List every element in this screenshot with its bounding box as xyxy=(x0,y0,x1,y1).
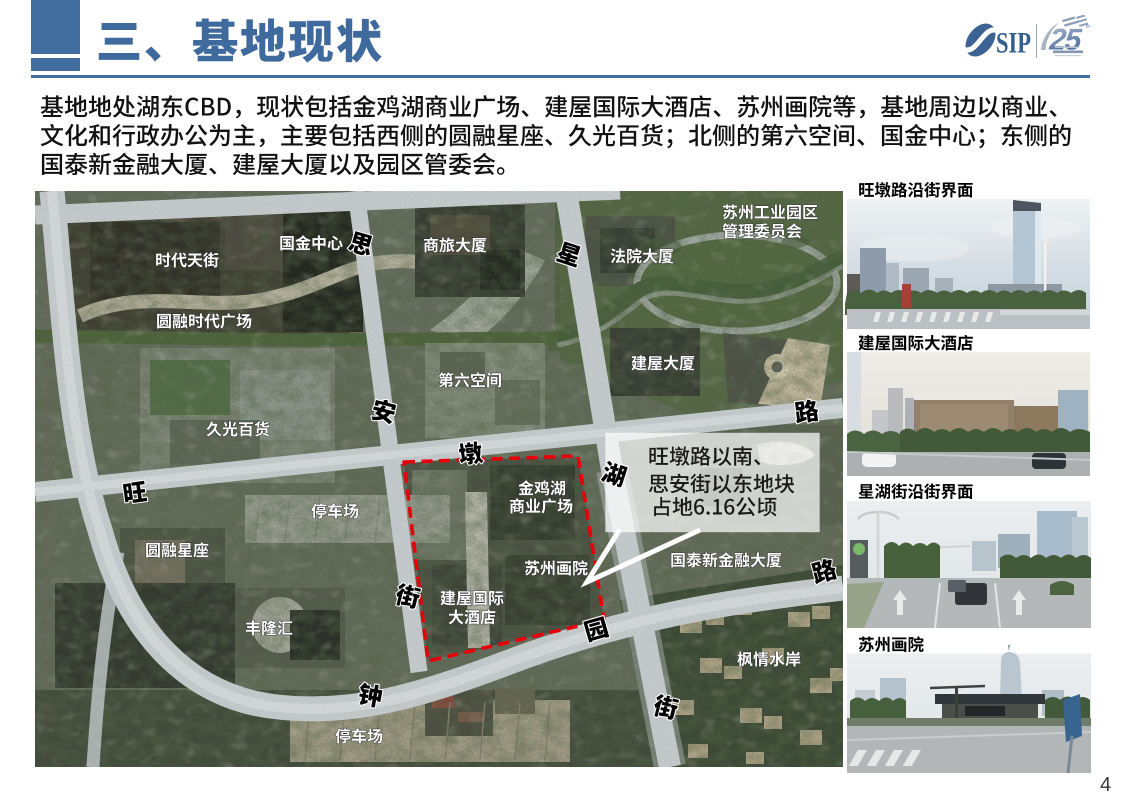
svg-text:SIP: SIP xyxy=(996,27,1031,60)
svg-text:th: th xyxy=(1086,24,1090,30)
